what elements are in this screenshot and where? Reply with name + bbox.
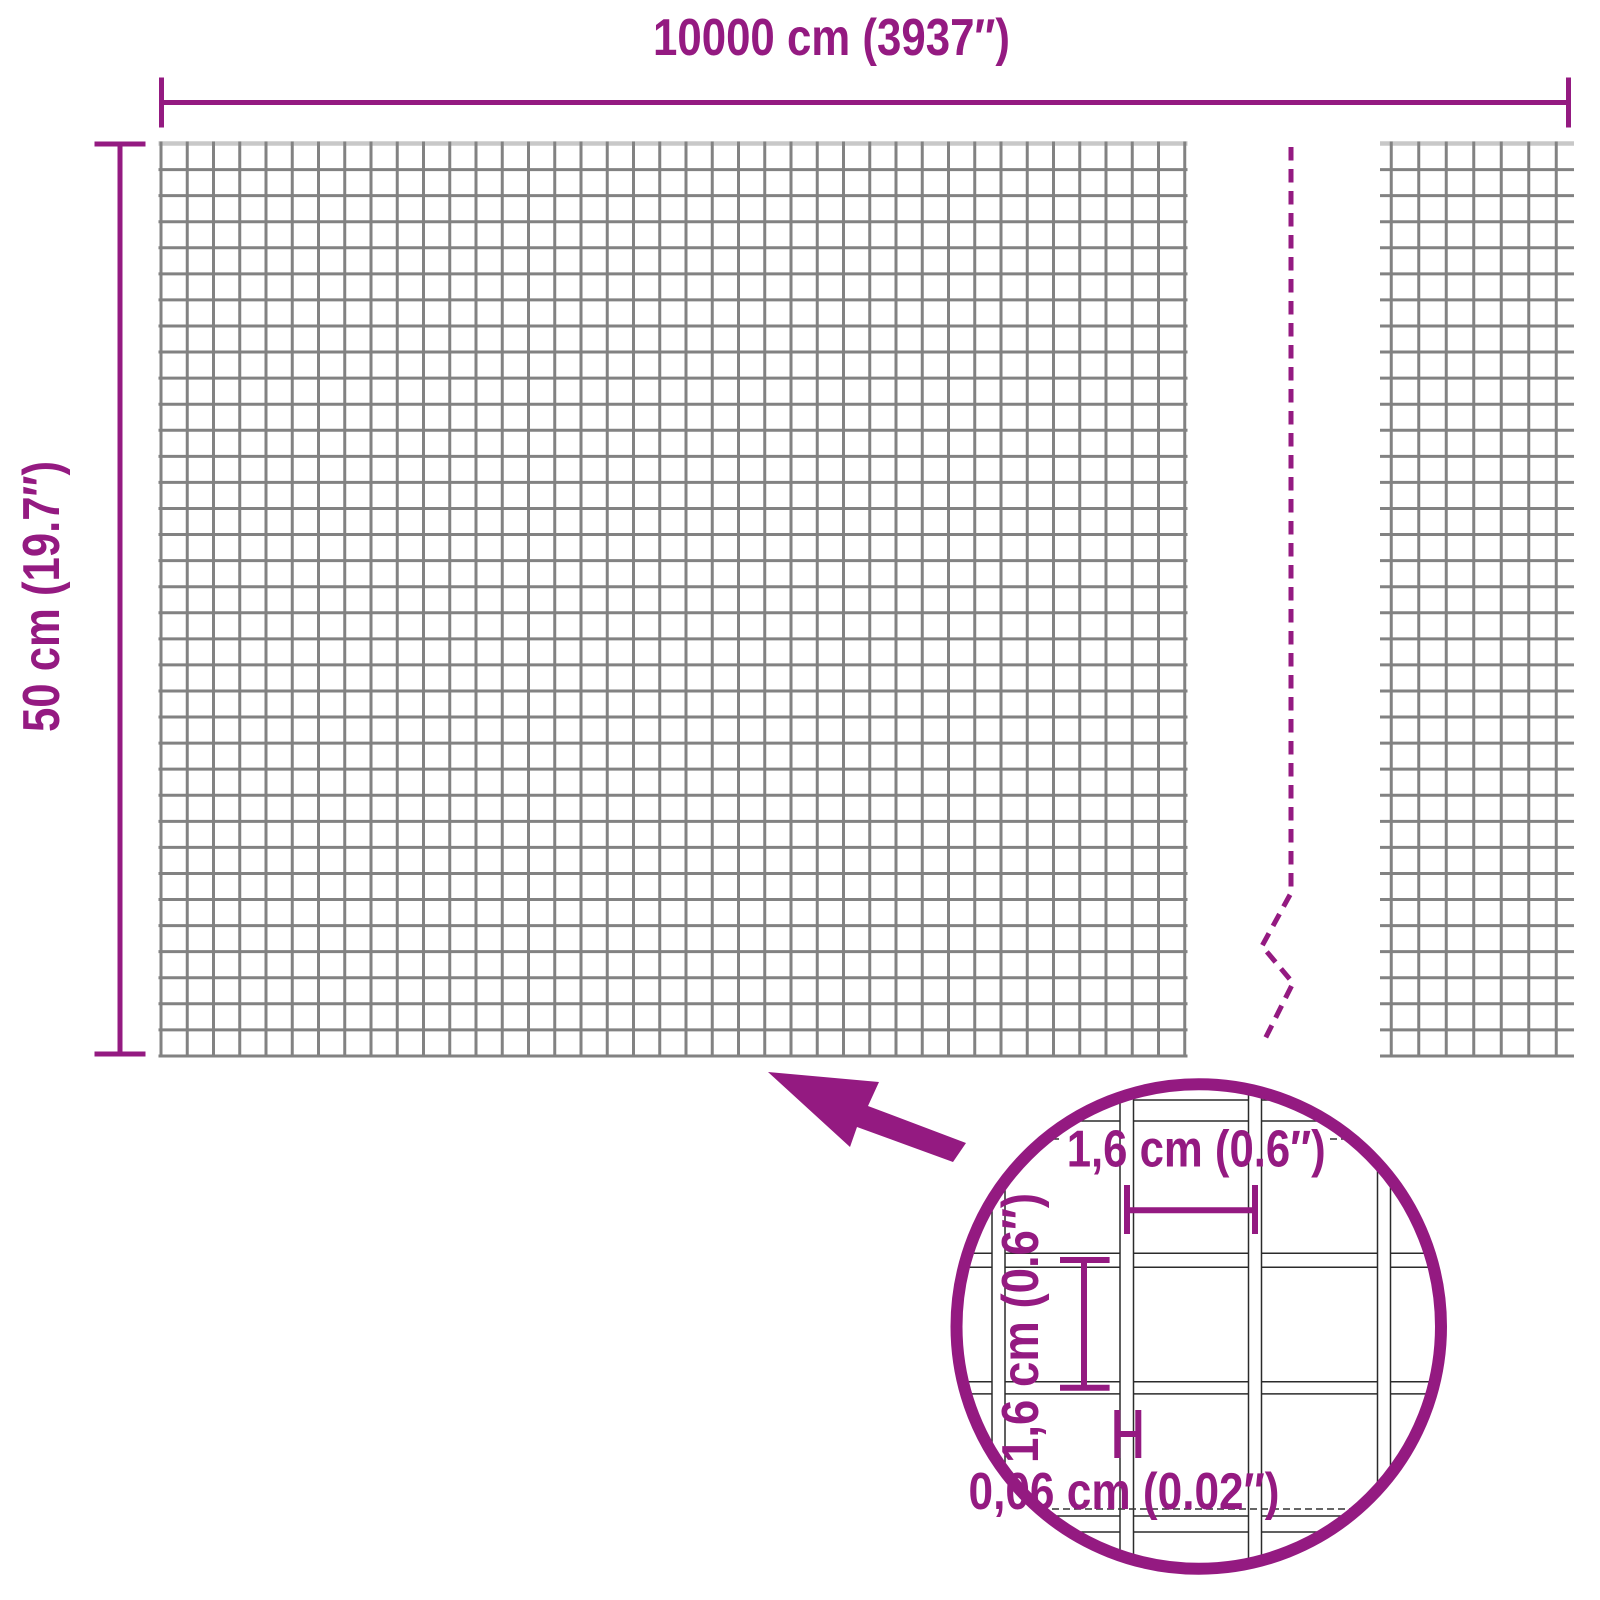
svg-text:1,6 cm (0.6″): 1,6 cm (0.6″) — [992, 1193, 1050, 1463]
svg-text:1,6 cm (0.6″): 1,6 cm (0.6″) — [1067, 1120, 1326, 1178]
svg-text:0,06 cm (0.02″): 0,06 cm (0.02″) — [969, 1463, 1280, 1521]
svg-text:50 cm (19.7″): 50 cm (19.7″) — [13, 461, 71, 732]
svg-text:10000 cm (3937″): 10000 cm (3937″) — [653, 9, 1010, 67]
